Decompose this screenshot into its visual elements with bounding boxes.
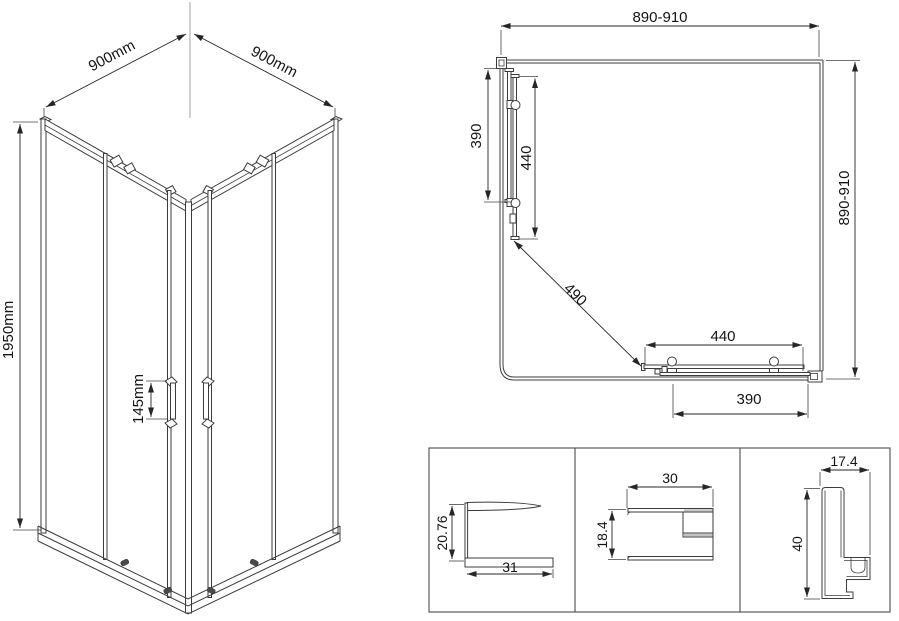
wall-profile-detail: 20.76 31 (434, 502, 553, 578)
dim-track-profile-width: 17.4 (830, 453, 857, 469)
track-profile-detail: 17.4 40 (789, 453, 870, 599)
dim-plan-right-label: 890-910 (836, 170, 853, 225)
drawing-canvas: 900mm 900mm 1950mm (0, 0, 899, 621)
iso-center-post (186, 202, 192, 613)
iso-top-rails (45, 119, 334, 211)
plan-door-guide (510, 214, 516, 223)
plan-dim-left-door: 440 (518, 77, 538, 240)
profile-boxes-frame (429, 448, 890, 612)
dim-iso-width-left-label: 900mm (86, 37, 138, 75)
iso-left-fixed-glass-edge (104, 154, 108, 560)
dim-track-profile-height: 40 (789, 536, 805, 552)
dim-rail-profile-height: 18.4 (594, 521, 610, 548)
iso-dim-width-right: 900mm (194, 34, 335, 119)
plan-view: 890-910 890-910 (468, 9, 860, 418)
dim-bottom-fixed-label: 390 (736, 391, 761, 408)
shower-enclosure-technical-drawing: 900mm 900mm 1950mm (0, 0, 899, 621)
dim-bottom-door-label: 440 (710, 328, 735, 345)
profile-details: 20.76 31 30 18.4 1 (429, 448, 890, 612)
iso-right-handle (202, 377, 214, 428)
plan-roller (511, 199, 520, 208)
plan-roller (511, 101, 520, 110)
plan-walls (497, 58, 824, 383)
iso-dim-width-left: 900mm (44, 34, 186, 119)
dim-left-door-label: 440 (518, 145, 535, 170)
dim-rail-profile-width: 30 (662, 470, 678, 486)
dim-wall-profile-width: 31 (502, 559, 518, 575)
iso-right-fixed-glass-edge (272, 154, 276, 560)
dim-handle-label: 145mm (130, 374, 147, 424)
iso-left-handle (165, 377, 177, 428)
plan-bottom-panels (642, 357, 811, 376)
iso-left-post (41, 119, 46, 533)
rail-profile-detail: 30 18.4 (594, 470, 713, 560)
plan-dim-top: 890-910 (501, 9, 819, 57)
dim-plan-top-label: 890-910 (632, 9, 687, 26)
plan-top-left-corner-profile (497, 58, 507, 69)
iso-right-post (333, 119, 338, 533)
plan-dim-diagonal: 490 (514, 241, 641, 366)
iso-dim-handle: 145mm (130, 374, 167, 424)
plan-dim-bottom-fixed: 390 (673, 384, 808, 418)
iso-dim-height: 1950mm (0, 122, 42, 530)
dim-iso-width-right-label: 900mm (248, 43, 300, 81)
plan-roller-bracket (668, 369, 677, 373)
dim-iso-height-label: 1950mm (0, 301, 17, 359)
plan-door-guide (655, 369, 660, 374)
plan-roller (770, 357, 779, 366)
dim-left-fixed-label: 390 (468, 123, 485, 148)
plan-dim-right: 890-910 (826, 61, 860, 380)
dim-wall-profile-height: 20.76 (434, 515, 450, 550)
dim-diagonal-label: 490 (560, 280, 590, 310)
plan-roller (668, 357, 677, 366)
plan-roller-bracket (770, 369, 779, 373)
iso-view: 900mm 900mm 1950mm (0, 2, 342, 614)
plan-dim-left-fixed: 390 (468, 69, 512, 203)
